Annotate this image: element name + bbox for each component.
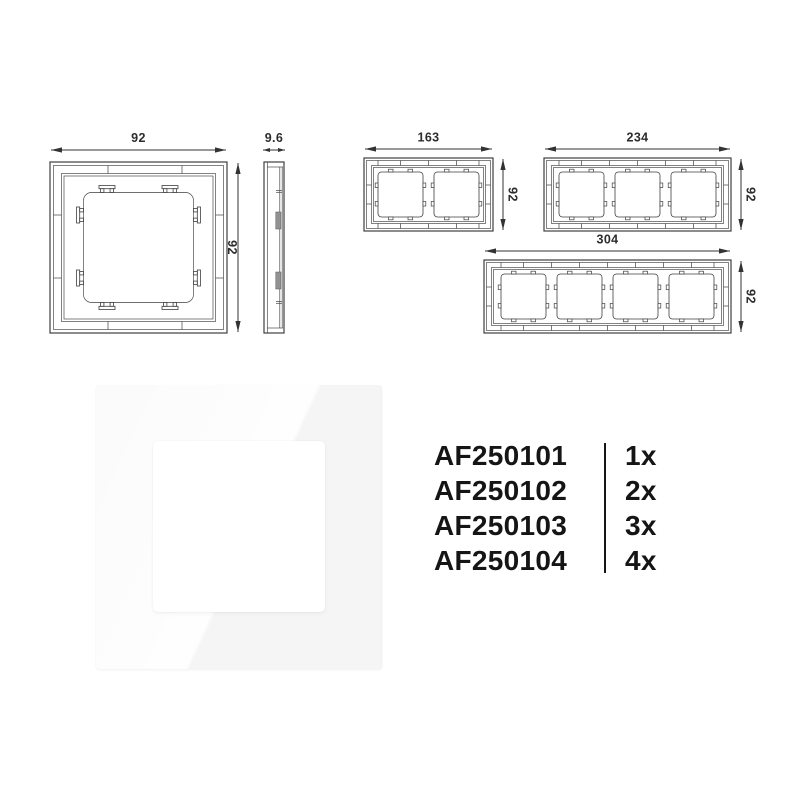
frame-3gang-view: 234 92 (544, 131, 758, 232)
product-row: AF250102 2x (434, 473, 694, 508)
product-qty: 1x (625, 440, 657, 472)
product-qty: 3x (625, 510, 657, 542)
dim-width-single: 92 (51, 131, 226, 150)
dim-width-3gang-label: 234 (626, 131, 648, 145)
product-qty: 2x (625, 475, 657, 507)
dim-width-2gang-label: 163 (417, 131, 439, 145)
dim-width-4gang-label: 304 (596, 233, 618, 247)
product-sku: AF250102 (434, 475, 625, 507)
product-sku: AF250101 (434, 440, 625, 472)
product-qty: 4x (625, 545, 657, 577)
product-row: AF250101 1x (434, 438, 694, 473)
product-photo (96, 385, 382, 669)
spec-sheet: 92 (0, 0, 800, 800)
dim-width-single-label: 92 (131, 131, 146, 145)
product-sku: AF250104 (434, 545, 625, 577)
dim-height-3gang-label: 92 (744, 187, 758, 202)
dim-height-4gang-label: 92 (744, 289, 758, 304)
product-row: AF250104 4x (434, 543, 694, 578)
product-row: AF250103 3x (434, 508, 694, 543)
dim-height-2gang-label: 92 (506, 187, 520, 202)
frame-2gang-view: 163 92 (364, 131, 520, 232)
product-list: AF250101 1x AF250102 2x AF250103 3x AF25… (434, 438, 694, 578)
product-sku: AF250103 (434, 510, 625, 542)
product-photo-window (153, 441, 325, 612)
list-divider (604, 443, 606, 573)
drawing-single-frame: 92 (40, 128, 300, 343)
single-frame-front-view (50, 162, 227, 333)
side-profile-view: 9.6 (263, 131, 285, 333)
dim-depth-label: 9.6 (265, 131, 284, 145)
frame-4gang-view: 304 (484, 233, 758, 334)
dim-height-single-label: 92 (225, 240, 239, 255)
drawing-multi-gang-frames: 163 92 234 (340, 128, 760, 343)
